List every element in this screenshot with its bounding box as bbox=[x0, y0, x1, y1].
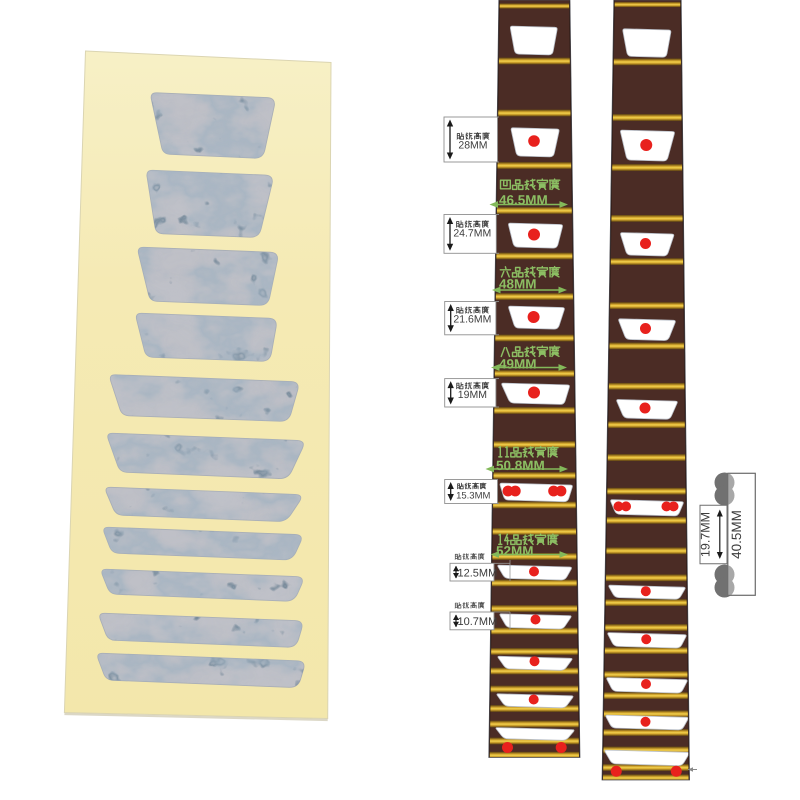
svg-text:15.3MM: 15.3MM bbox=[456, 491, 490, 502]
svg-text:49MM: 49MM bbox=[499, 357, 537, 372]
svg-text:50.8MM: 50.8MM bbox=[496, 458, 545, 473]
svg-text:19.7MM: 19.7MM bbox=[699, 512, 713, 557]
svg-text:12.5MM: 12.5MM bbox=[458, 567, 498, 579]
svg-text:21.6MM: 21.6MM bbox=[453, 314, 491, 326]
svg-text:52MM: 52MM bbox=[496, 544, 534, 559]
svg-text:24.7MM: 24.7MM bbox=[453, 228, 491, 240]
svg-text:28MM: 28MM bbox=[458, 140, 487, 152]
svg-text:19MM: 19MM bbox=[458, 389, 487, 401]
svg-text:10.7MM: 10.7MM bbox=[458, 616, 498, 628]
svg-text:40.5MM: 40.5MM bbox=[729, 510, 744, 559]
